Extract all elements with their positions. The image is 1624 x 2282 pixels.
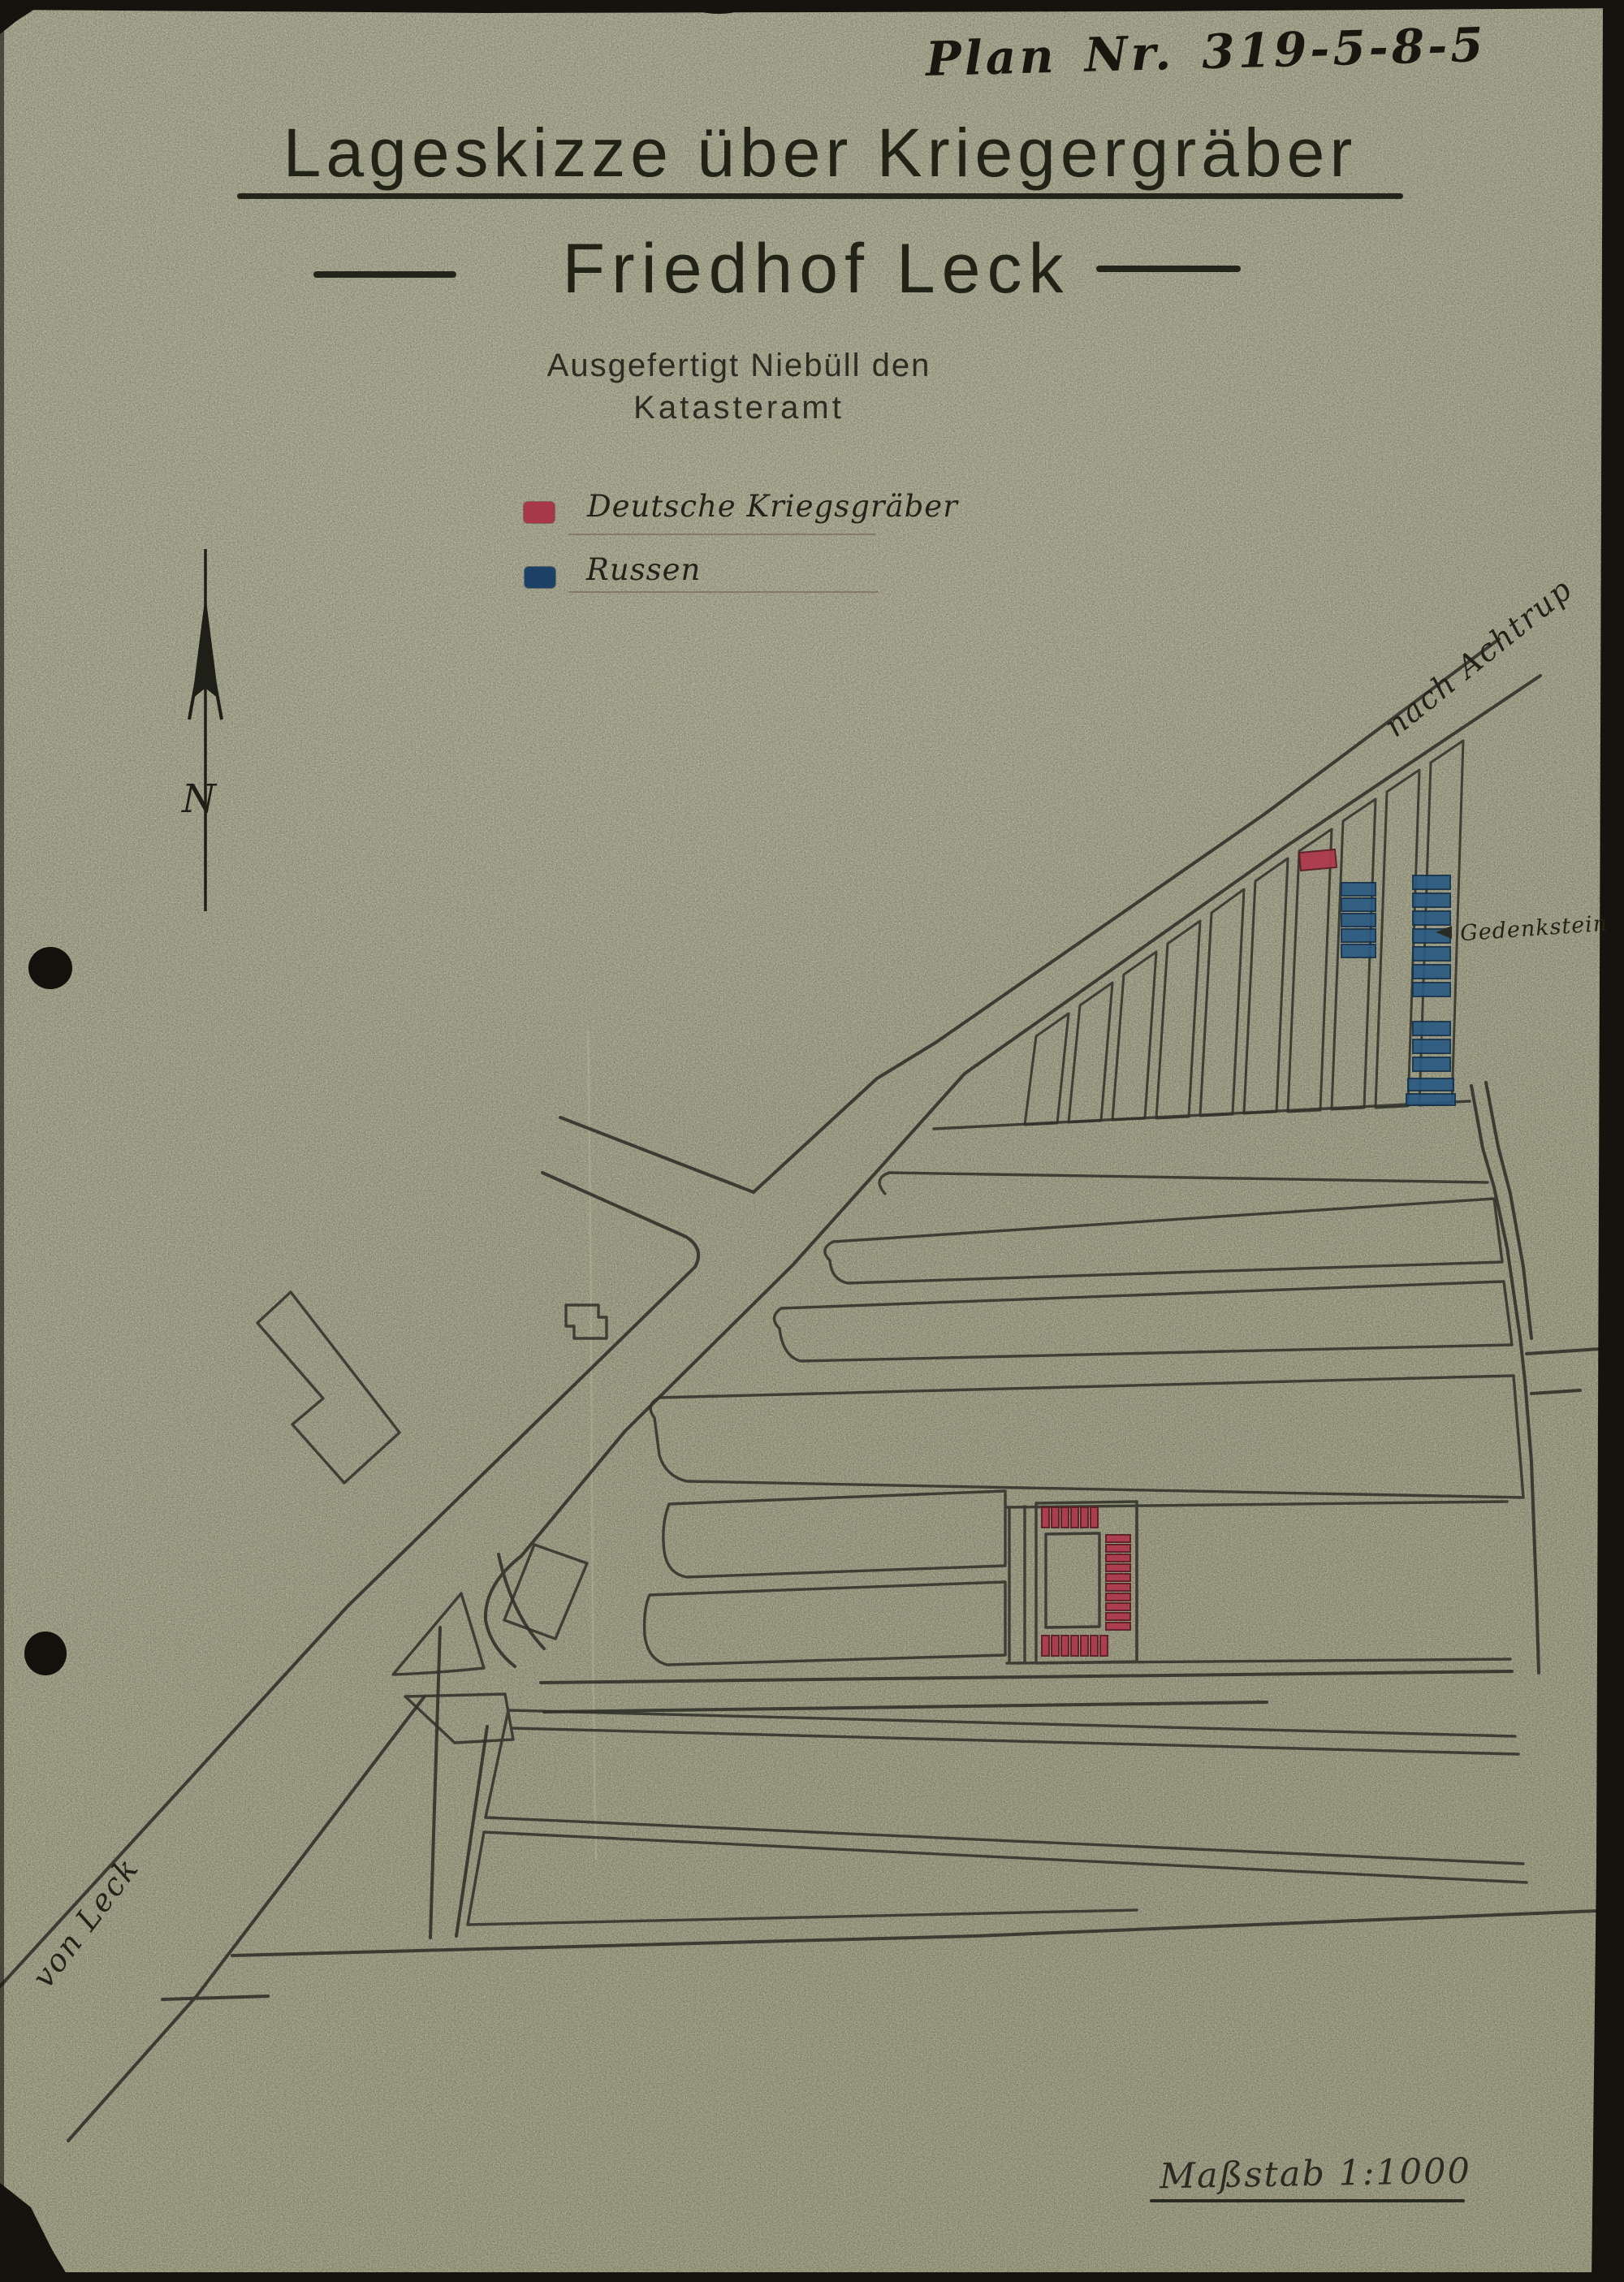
issued-line-2: Katasteramt: [455, 390, 1023, 426]
page-title: Lageskizze über Kriegergräber: [227, 114, 1413, 192]
subtitle-dash-left: [313, 271, 456, 278]
german-graves-swatch: [524, 502, 555, 523]
map-drawing: [0, 0, 1624, 2282]
legend-underline-german: [568, 534, 875, 535]
scanned-map-sheet: Plan Nr. 319-5-8-5 Lageskizze über Krieg…: [0, 0, 1624, 2282]
scale-label: Maßstab 1:1000: [1160, 2151, 1472, 2198]
legend-underline-russian: [568, 591, 879, 593]
scan-edge-bottom: [0, 2272, 1624, 2282]
punch-hole-top: [28, 947, 72, 989]
scale-underline: [1150, 2199, 1465, 2202]
scan-edge-left: [0, 0, 4, 2282]
punch-hole-bottom: [24, 1632, 67, 1675]
subtitle-dash-right: [1096, 266, 1241, 272]
legend-label-german: Deutsche Kriegsgräber: [587, 489, 958, 524]
legend-label-russian: Russen: [586, 552, 701, 587]
russian-graves-swatch: [525, 567, 555, 588]
north-label: N: [182, 776, 216, 822]
issued-line-1: Ausgefertigt Niebüll den: [455, 348, 1023, 384]
title-underline: [237, 193, 1403, 199]
